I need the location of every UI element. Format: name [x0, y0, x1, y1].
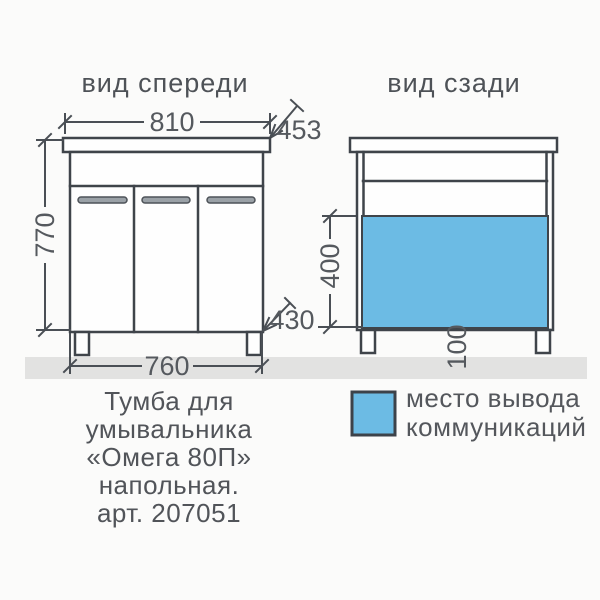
- caption-line-5: арт. 207051: [97, 498, 241, 528]
- dim-810-label: 810: [149, 107, 194, 137]
- door-handle-2: [142, 197, 190, 203]
- dim-400-label: 400: [315, 243, 345, 288]
- drawing-canvas: вид спереди 810 453: [0, 0, 600, 600]
- dim-760-label: 760: [144, 351, 189, 381]
- caption-line-3: «Омега 80П»: [86, 442, 251, 472]
- dim-770: 770: [30, 134, 70, 336]
- communications-zone: [362, 216, 548, 328]
- back-view-title: вид сзади: [387, 68, 520, 98]
- legend: место вывода коммуникаций: [352, 383, 586, 442]
- legend-label-line1: место вывода: [406, 383, 580, 413]
- back-leg-right: [536, 330, 550, 353]
- legend-label-line2: коммуникаций: [406, 412, 586, 442]
- floor-band: [25, 357, 587, 379]
- back-leg-left: [361, 330, 375, 353]
- dim-810: 810: [59, 107, 276, 137]
- caption-line-2: умывальника: [86, 414, 253, 444]
- legend-swatch: [352, 392, 395, 435]
- dim-430-label: 430: [269, 305, 314, 335]
- dim-453: 453: [270, 100, 322, 145]
- back-view: вид сзади 400 100: [315, 68, 557, 370]
- door-handle-1: [78, 197, 127, 203]
- front-leg-right: [247, 332, 261, 355]
- dim-770-label: 770: [30, 212, 60, 257]
- dim-100-label: 100: [442, 324, 472, 369]
- dim-400: 400: [315, 210, 362, 333]
- front-view: вид спереди 810 453: [30, 68, 322, 381]
- product-caption: Тумба для умывальника «Омега 80П» наполь…: [86, 386, 253, 528]
- front-view-title: вид спереди: [81, 68, 248, 98]
- dim-453-label: 453: [276, 115, 321, 145]
- caption-line-1: Тумба для: [104, 386, 234, 416]
- caption-line-4: напольная.: [99, 470, 240, 500]
- technical-drawing: вид спереди 810 453: [0, 0, 600, 600]
- door-handle-3: [207, 197, 255, 203]
- front-leg-left: [75, 332, 89, 355]
- front-counter-top: [63, 138, 270, 152]
- dim-430: 430: [263, 298, 315, 335]
- back-counter-top: [350, 138, 557, 152]
- dim-tbar: [291, 100, 303, 111]
- front-cabinet-body: [70, 152, 263, 332]
